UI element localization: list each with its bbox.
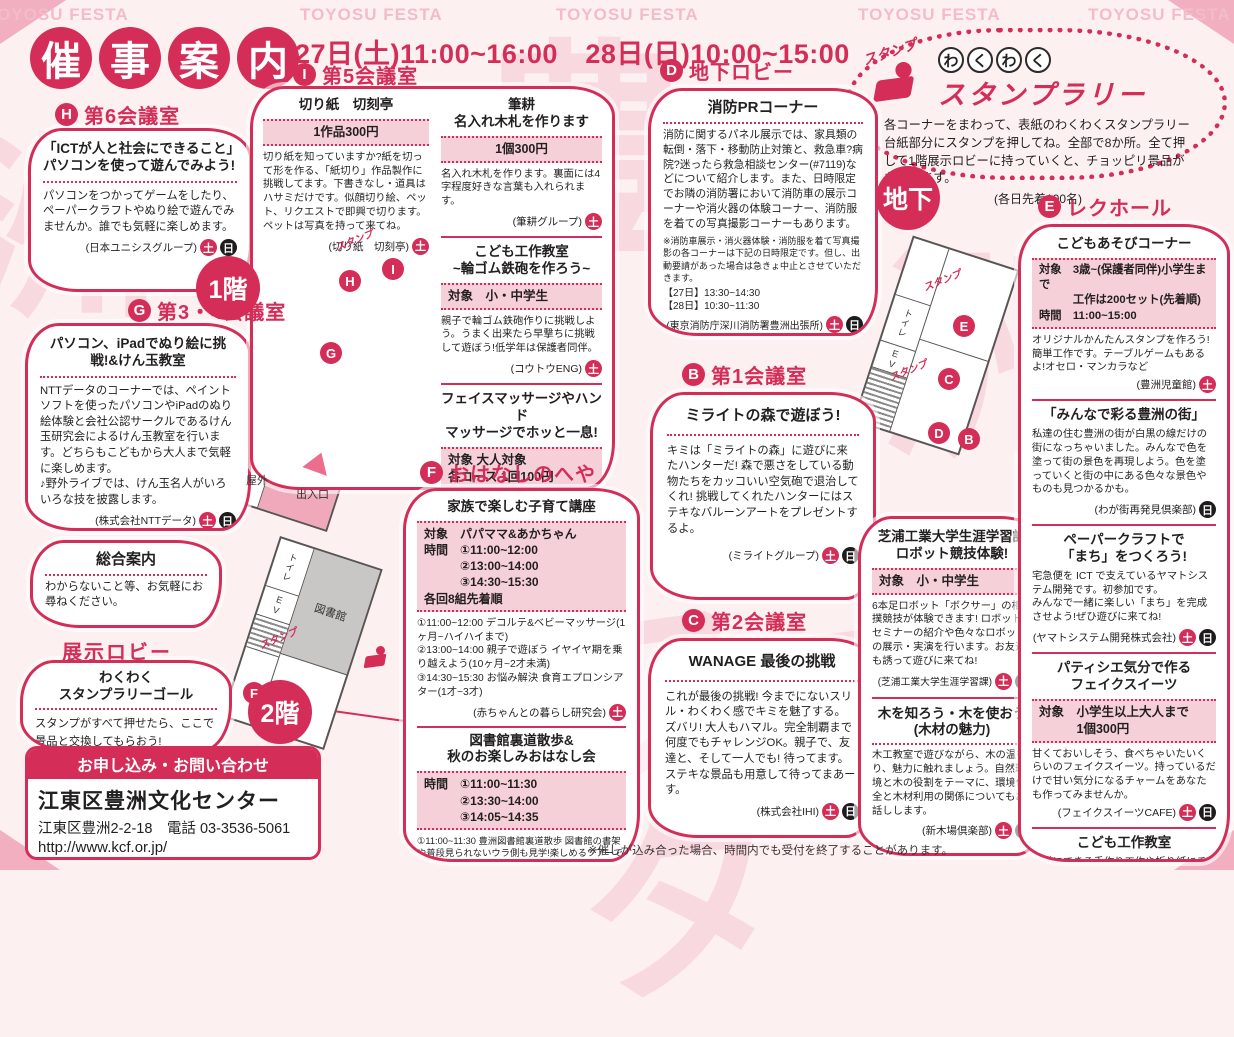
- program-body: キミは「ミライトの森」に遊びに来たハンターだ! 森で悪さをしている動物たちをカッ…: [667, 444, 859, 537]
- title-char: 催: [30, 27, 92, 89]
- map-marker-h: H: [339, 270, 361, 292]
- stamp-rally-panel: わくわく スタンプラリー 各コーナーをまわって、表紙のわくわくスタンプラリー台紙…: [845, 28, 1227, 180]
- wakuwaku-char: く: [967, 47, 993, 73]
- program-body: 切り紙を知っていますか?紙を切って形を作る、「紙切り」作品製作に挑戦してます。下…: [263, 151, 429, 234]
- program-title: パソコン、iPadでぬり絵に挑戦!&けん玉教室: [40, 336, 236, 370]
- program-title: 木を知ろう・木を使おう (木材の魅力): [872, 706, 1032, 740]
- section-head-f: F おはなしのへや: [420, 458, 596, 487]
- section-head-e: E レクホール: [1038, 192, 1172, 221]
- program-f-cloud: 家族で楽しむ子育て講座 対象 パパママ&あかちゃん 時間 ①11:00~12:0…: [403, 488, 640, 862]
- sunday-badge: 日: [846, 316, 863, 333]
- program-credit: (新木場倶楽部)土日: [872, 822, 1032, 839]
- program-e-cloud: こどもあそびコーナー 対象 3歳~(保護者同伴)小学生まで 工作は200セット(…: [1018, 224, 1230, 862]
- map-marker-f: F: [243, 682, 265, 704]
- price-box: 1作品300円: [263, 119, 429, 146]
- program-title: 切り紙 切刻亭: [263, 97, 429, 114]
- room-letter-badge: E: [1038, 195, 1061, 218]
- title-char: 事: [99, 27, 161, 89]
- contact-header: お申し込み・お問い合わせ: [28, 749, 318, 779]
- room-name: 第2会議室: [711, 606, 807, 635]
- program-credit: (東京消防庁深川消防署豊洲出張所)土日: [663, 316, 863, 333]
- program-title: フェイスマッサージやハンド マッサージでホッと一息!: [441, 391, 602, 442]
- price-box: 1個300円: [441, 136, 602, 163]
- program-title: 芝浦工業大学生涯学習課 ロボット競技体験!: [872, 529, 1032, 563]
- program-body: パソコンをつかってゲームをしたり、ペーパークラフトやぬり絵で遊んでみませんか。誰…: [43, 189, 237, 236]
- program-credit: (豊洲児童館)土: [1032, 376, 1216, 393]
- wakuwaku-char: く: [1025, 47, 1051, 73]
- title-char: 内: [237, 27, 299, 89]
- program-credit: (ミライトグループ)土日: [667, 547, 859, 564]
- saturday-badge: 土: [822, 547, 839, 564]
- target-box: 対象 小・中学生: [872, 568, 1032, 595]
- program-credit: (芝浦工業大学生涯学習課)土日: [872, 673, 1032, 690]
- kirigami-program: 切り紙 切刻亭 1作品300円 切り紙を知っていますか?紙を切って形を作る、「紙…: [263, 97, 429, 490]
- saturday-badge: 土: [1179, 804, 1196, 821]
- section-head-h6: H 第6会議室: [55, 100, 180, 129]
- venue-url: http://www.kcf.or.jp/: [38, 839, 308, 856]
- watermark-text: TOYOSU FESTA: [300, 5, 443, 25]
- program-credit: (フェイクスイーツCAFE)土日: [1032, 804, 1216, 821]
- program-title: 家族で楽しむ子育て講座: [417, 499, 626, 516]
- program-credit: (コウトウENG)土: [441, 360, 602, 377]
- program-credit: (株式会社IHI)土日: [665, 803, 859, 820]
- info-box: 時間 ①11:00~11:30 ②13:30~14:00 ③14:05~14:3…: [417, 771, 626, 830]
- program-title: こども工作教室 ~輪ゴム鉄砲を作ろう~: [441, 244, 602, 278]
- program-title: ペーパークラフトで 「まち」をつくろう!: [1032, 532, 1216, 566]
- map-marker-g: G: [320, 342, 342, 364]
- info-box: 対象 3歳~(保護者同伴)小学生まで 工作は200セット(先着順) 時間 11:…: [1032, 258, 1216, 329]
- program-body: ①11:00~12:00 デコルテ&ベビーマッサージ(1ヶ月~ハイハイまで) ②…: [417, 617, 626, 700]
- sunday-badge: 日: [1199, 804, 1216, 821]
- room-letter-badge: G: [128, 299, 151, 322]
- program-credit: (わが街再発見倶楽部)日: [1032, 501, 1216, 518]
- room-letter-badge: C: [682, 609, 705, 632]
- sunday-badge: 日: [1199, 501, 1216, 518]
- sunday-badge: 日: [219, 512, 236, 529]
- section-head-b: B 第1会議室: [682, 360, 807, 389]
- stamp-icon: [363, 646, 389, 668]
- watermark-text: TOYOSU FESTA: [556, 5, 699, 25]
- room-name: 第1会議室: [711, 360, 807, 389]
- bottom-note: ※催しが込み合った場合、時間内でも受付を終了することがあります。: [588, 842, 953, 858]
- saturday-badge: 土: [1199, 376, 1216, 393]
- program-credit: (赤ちゃんとの暮らし研究会)土: [417, 704, 626, 721]
- i5-right-column: 筆耕 名入れ木札を作ります 1個300円 名入れ木札を作ります。裏面には4字程度…: [441, 97, 602, 490]
- program-title: パティシエ気分で作る フェイクスイーツ: [1032, 660, 1216, 694]
- watermark-text: TOYOSU FESTA: [858, 5, 1001, 25]
- wakuwaku-char: わ: [938, 47, 964, 73]
- map-entrance-label: 出入口: [296, 486, 329, 502]
- saturday-badge: 土: [822, 803, 839, 820]
- map-marker-c: C: [938, 368, 960, 390]
- room-letter-badge: H: [55, 103, 78, 126]
- watermark-text: TOYOSU FESTA: [0, 5, 129, 25]
- title-char: 案: [168, 27, 230, 89]
- sunday-badge: 日: [842, 803, 859, 820]
- map-marker-e: E: [953, 315, 975, 337]
- program-note: ※消防車展示・消火器体験・消防服を着て写真撮影の各コーナーは下記の日時限定です。…: [663, 235, 863, 285]
- map-outside-label: 屋外: [246, 472, 268, 488]
- goal-body: スタンプがすべて押せたら、ここで景品と交換してもらおう!: [35, 718, 214, 749]
- room-letter-badge: B: [682, 363, 705, 386]
- program-title: 「みんなで彩る豊洲の街」: [1032, 407, 1216, 424]
- program-body: 私達の住む豊洲の街が白黒の線だけの街になっちゃいました。みんなで色を塗って街の景…: [1032, 428, 1216, 497]
- program-body: 名入れ木札を作ります。裏面には4字程度好きな言葉も入れられます。: [441, 168, 602, 209]
- program-title: ミライトの森で遊ぼう!: [667, 407, 859, 426]
- saturday-badge: 土: [995, 822, 1012, 839]
- section-head-i5: I 第5会議室: [293, 60, 418, 89]
- program-title: 筆耕 名入れ木札を作ります: [441, 97, 602, 131]
- room-name: おはなしのへや: [449, 458, 596, 487]
- page-title: 催 事 案 内: [30, 27, 299, 89]
- sunday-badge: 日: [220, 239, 237, 256]
- section-head-d: D 地下ロビー: [660, 56, 794, 85]
- saturday-badge: 土: [995, 673, 1012, 690]
- program-body: 消防に関するパネル展示では、家具類の転倒・落下・移動防止対策と、救急車?病院?迷…: [663, 128, 863, 232]
- room-name: 第6会議室: [84, 100, 180, 129]
- program-body: これが最後の挑戦! 今までにないスリル・わくわく感でキミを魅了する。 ズバリ! …: [665, 690, 859, 799]
- program-body: 親子で輪ゴム鉄砲作りに挑戦しよう。うまく出来たら早撃ちに挑戦して遊ぼう!低学年は…: [441, 315, 602, 356]
- room-name: 地下ロビー: [689, 56, 794, 85]
- stamp-rally-title: スタンプラリー: [938, 73, 1147, 112]
- program-title: 消防PRコーナー: [663, 99, 863, 118]
- target-box: 対象 小・中学生: [441, 283, 602, 310]
- saturday-badge: 土: [199, 512, 216, 529]
- floor-1-badge: 1階: [196, 256, 260, 320]
- map-marker-i: I: [382, 258, 404, 280]
- info-box: 対象 パパママ&あかちゃん 時間 ①11:00~12:00 ②13:00~14:…: [417, 521, 626, 612]
- program-i5-cloud: 切り紙 切刻亭 1作品300円 切り紙を知っていますか?紙を切って形を作る、「紙…: [250, 86, 615, 490]
- program-title: こども工作教室: [1032, 835, 1216, 852]
- program-credit: (日本ユニシスグループ)土日: [43, 239, 237, 256]
- venue-name: 江東区豊洲文化センター: [38, 785, 308, 815]
- program-g34: パソコン、iPadでぬり絵に挑戦!&けん玉教室 NTTデータのコーナーでは、ペイ…: [25, 323, 251, 531]
- room-name: 第5会議室: [322, 60, 418, 89]
- sunday-badge: 日: [842, 547, 859, 564]
- section-head-c: C 第2会議室: [682, 606, 807, 635]
- program-credit: (株式会社NTTデータ)土日: [40, 512, 236, 529]
- program-body: 6本足ロボット「ボクサー」の相撲競技が体験できます! ロボットセミナーの紹介や色…: [872, 600, 1032, 669]
- program-body: オリジナルかんたんスタンプを作ろう!簡単工作です。テーブルゲームもあるよ!オセロ…: [1032, 334, 1216, 375]
- program-body: NTTデータのコーナーでは、ペイントソフトを使ったパソコンやiPadのぬり絵体験…: [40, 384, 236, 509]
- saturday-badge: 土: [200, 239, 217, 256]
- contact-box: お申し込み・お問い合わせ 江東区豊洲文化センター 江東区豊洲2-2-18 電話 …: [25, 746, 321, 860]
- info-desk-body: わからないこと等、お気軽にお尋ねください。: [45, 580, 207, 611]
- room-name: レクホール: [1067, 192, 1172, 221]
- room-letter-badge: I: [293, 63, 316, 86]
- watermark-text: TOYOSU FESTA: [1088, 5, 1231, 25]
- program-body: 木工教室で遊びながら、木の温もり、魅力に触れましょう。自然環境と木の役割をテーマ…: [872, 749, 1032, 818]
- sunday-badge: 日: [1199, 629, 1216, 646]
- program-credit: (ヤマトシステム開発株式会社)土日: [1032, 629, 1216, 646]
- info-box: 対象 小学生以上大人まで 1個300円: [1032, 699, 1216, 743]
- venue-address: 江東区豊洲2-2-18 電話 03-3536-5061: [38, 817, 308, 838]
- floor-b1-badge: 地下: [876, 166, 940, 230]
- program-title: こどもあそびコーナー: [1032, 236, 1216, 253]
- program-title: 「ICTが人と社会にできること」パソコンを使って遊んでみよう!: [43, 141, 237, 175]
- info-desk-title: 総合案内: [45, 551, 207, 570]
- map-marker-d: D: [928, 422, 950, 444]
- program-body: 甘くておいしそう、食べちゃいたいくらいのフェイクスイーツ。持っているだけで甘い気…: [1032, 748, 1216, 803]
- program-title: 図書館裏道散歩& 秋のお楽しみおはなし会: [417, 733, 626, 767]
- program-body: 簡単にできる手作り工作や折り紙にチャレンジ! 小さい子から出来るよ。おうちの人と…: [1032, 856, 1216, 862]
- program-body: 宅急便を ICT で支えているヤマトシステム開発です。初参加です。 みんなで一緒…: [1032, 570, 1216, 625]
- program-fire: 消防PRコーナー 消防に関するパネル展示では、家具類の転倒・落下・移動防止対策と…: [648, 88, 878, 336]
- room-letter-badge: F: [420, 461, 443, 484]
- program-title: WANAGE 最後の挑戦: [665, 653, 859, 672]
- saturday-badge: 土: [585, 360, 602, 377]
- saturday-badge: 土: [412, 238, 429, 255]
- saturday-badge: 土: [1179, 629, 1196, 646]
- program-mirait: ミライトの森で遊ぼう! キミは「ミライトの森」に遊びに来たハンターだ! 森で悪さ…: [650, 392, 876, 600]
- venue-hours: 開館時間 9:00~22:00(第2・4月曜日休館): [38, 857, 308, 860]
- room-letter-badge: D: [660, 59, 683, 82]
- saturday-badge: 土: [585, 213, 602, 230]
- saturday-badge: 土: [609, 704, 626, 721]
- program-times: 【27日】13:30~14:30 【28日】10:30~11:30: [663, 287, 863, 315]
- saturday-badge: 土: [826, 316, 843, 333]
- program-wanage: WANAGE 最後の挑戦 これが最後の挑戦! 今までにないスリル・わくわく感でキ…: [648, 638, 876, 838]
- lobby-label: 展示ロビー: [62, 636, 172, 665]
- stamp-rally-goal: わくわく スタンプラリーゴール スタンプがすべて押せたら、ここで景品と交換しても…: [20, 660, 232, 752]
- map-marker-b: B: [958, 428, 980, 450]
- goal-title: わくわく スタンプラリーゴール: [35, 670, 217, 704]
- wakuwaku-char: わ: [996, 47, 1022, 73]
- info-desk: 総合案内 わからないこと等、お気軽にお尋ねください。: [30, 540, 222, 628]
- program-credit: (筆耕グループ)土: [441, 213, 602, 230]
